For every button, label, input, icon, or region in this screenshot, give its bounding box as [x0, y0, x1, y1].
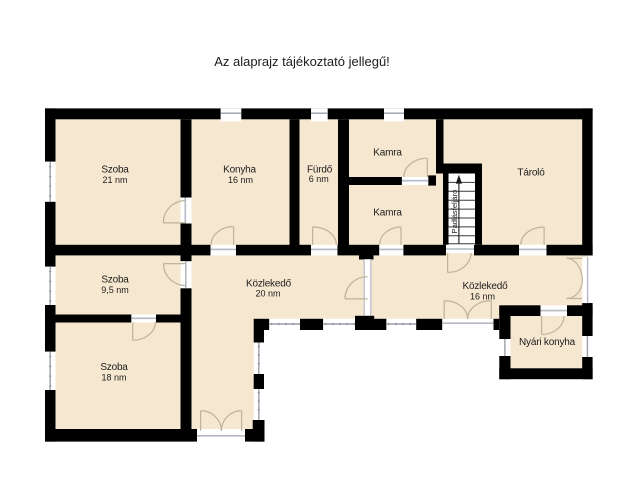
svg-text:Szoba: Szoba [101, 165, 129, 176]
svg-text:6 nm: 6 nm [309, 174, 329, 184]
svg-text:16 nm: 16 nm [470, 292, 495, 302]
svg-text:Kamra: Kamra [373, 147, 402, 158]
svg-text:Padlásfeljáró: Padlásfeljáró [450, 190, 459, 234]
svg-text:21 nm: 21 nm [102, 175, 127, 185]
svg-text:Az alaprajz tájékoztató jelleg: Az alaprajz tájékoztató jellegű! [214, 54, 390, 69]
svg-text:20 nm: 20 nm [255, 288, 280, 298]
svg-text:Kamra: Kamra [373, 208, 402, 219]
svg-text:Tároló: Tároló [517, 167, 545, 178]
svg-text:Közlekedő: Közlekedő [463, 281, 509, 292]
svg-text:9,5 nm: 9,5 nm [101, 285, 129, 295]
svg-text:18 nm: 18 nm [101, 372, 126, 382]
svg-text:Konyha: Konyha [223, 165, 256, 176]
svg-text:Nyári konyha: Nyári konyha [519, 337, 576, 348]
svg-text:16 nm: 16 nm [228, 175, 253, 185]
